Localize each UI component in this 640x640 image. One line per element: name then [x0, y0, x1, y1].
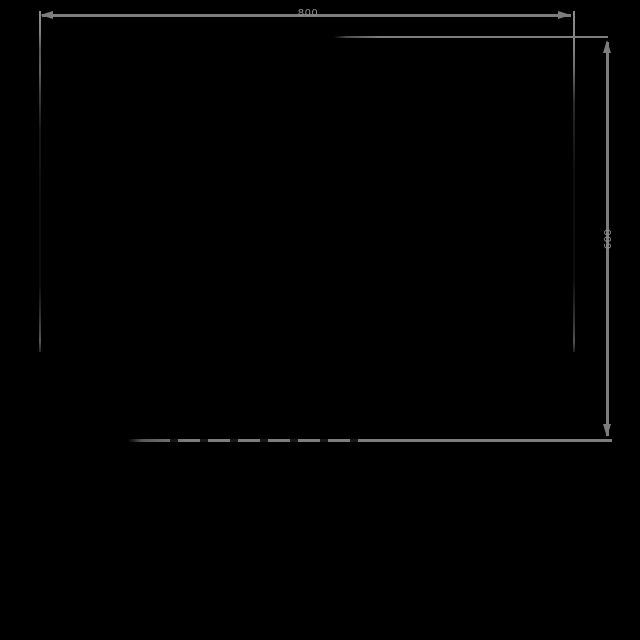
height-dimension-label: 600 [603, 229, 615, 250]
arrow-down-icon [603, 424, 611, 437]
width-dimension-label: 800 [292, 8, 324, 20]
right-extension-line [573, 11, 575, 352]
left-extension-line [39, 11, 41, 352]
arrow-right-icon [558, 11, 571, 19]
arrow-up-icon [603, 40, 611, 53]
dimension-diagram: 800 600 [0, 0, 640, 640]
top-extension-line [334, 36, 608, 38]
arrow-left-icon [40, 11, 53, 19]
bottom-line-dash-ticks [148, 439, 374, 442]
